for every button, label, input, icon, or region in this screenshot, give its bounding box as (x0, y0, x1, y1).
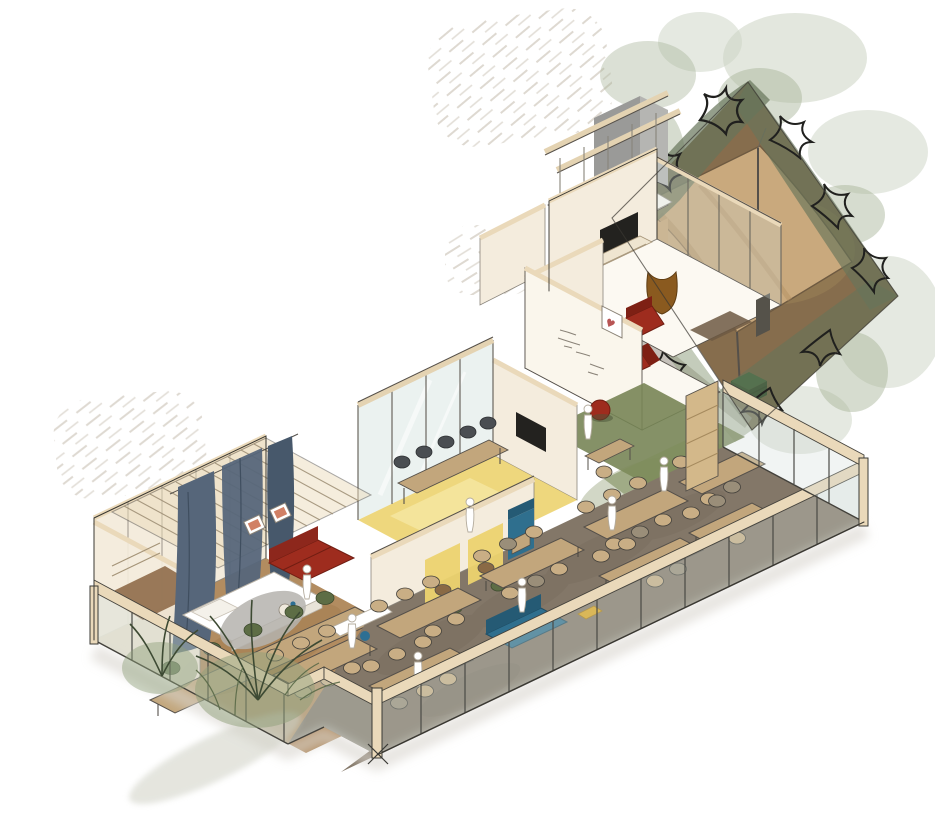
blue-stool (360, 631, 370, 641)
person-figure (518, 578, 526, 612)
garden-door (756, 293, 770, 337)
desk-chair (596, 466, 612, 478)
person-figure (584, 405, 592, 439)
person-figure (303, 565, 311, 599)
person-figure (660, 457, 668, 491)
person-figure (608, 496, 616, 530)
sketch-canvas: ♥ (0, 0, 935, 836)
person-figure (466, 498, 474, 532)
isometric-cutaway-illustration: ♥ (0, 0, 935, 836)
tall-cabinet (686, 381, 718, 491)
person-figure (348, 614, 356, 648)
